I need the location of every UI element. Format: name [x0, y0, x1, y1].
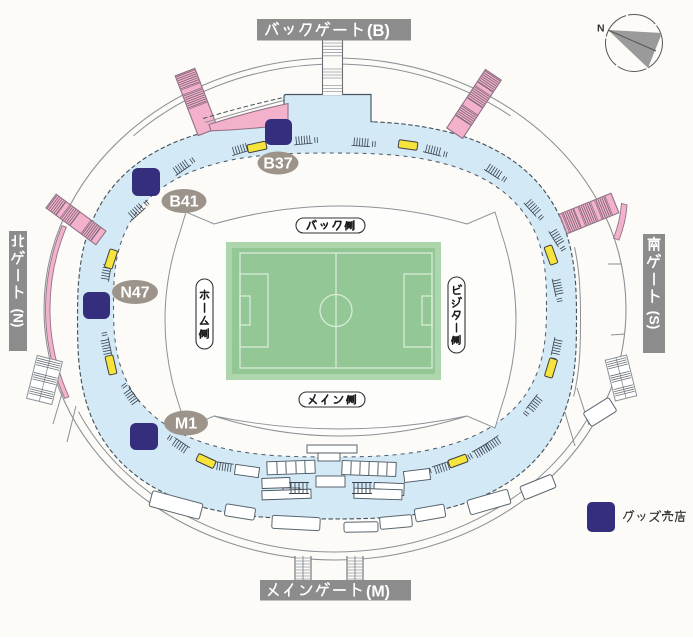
- svg-text:(S): (S): [647, 311, 663, 330]
- svg-text:(N): (N): [11, 309, 26, 328]
- svg-text:(B): (B): [367, 22, 390, 40]
- svg-text:M1: M1: [175, 416, 197, 433]
- svg-text:N47: N47: [120, 285, 149, 302]
- svg-text:(M): (M): [366, 584, 390, 601]
- svg-text:B37: B37: [263, 156, 292, 173]
- svg-text:N: N: [597, 23, 605, 35]
- svg-text:B41: B41: [169, 194, 198, 211]
